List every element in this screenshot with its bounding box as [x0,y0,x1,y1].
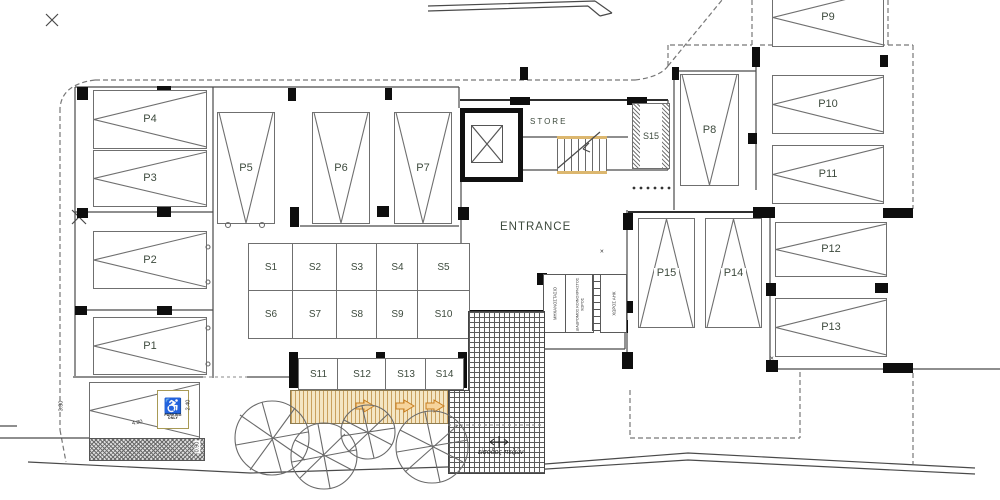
storage-s3: S3 [336,243,378,292]
store-label: STORE [530,117,567,126]
parking-label: P2 [140,255,159,266]
hatched-strip [89,438,205,461]
storage-s6: S6 [248,290,294,339]
parking-label: P11 [816,169,841,180]
machine-room: ΜΗΧΑΝΟΣΤΑΣΙΟ [543,274,567,333]
joint-symbol: ›‹ [770,355,773,362]
elevator-shaft [460,108,523,182]
parking-label: P9 [818,12,837,23]
parking-label: P8 [700,125,719,136]
parking-space-p15: P15 [638,218,695,328]
storage-label: S15 [643,131,659,141]
parking-label: P12 [818,244,844,255]
parking-label: P6 [331,163,350,174]
parking-space-p11: P11 [772,145,884,204]
pedestrian-entrance-label: είσοδος πεζών [478,449,524,456]
parking-space-p2: P2 [93,231,207,289]
dimension-2-40: 2.40 [185,400,191,411]
survey-x-marks [46,14,86,224]
storage-label: S14 [436,369,454,380]
storage-s13: S13 [385,358,427,390]
parking-space-p3: P3 [93,150,207,207]
storage-s7: S7 [292,290,338,339]
parking-space-p8: P8 [680,74,739,186]
storage-label: S5 [437,262,449,273]
storage-label: S12 [353,369,371,380]
storage-s9: S9 [376,290,419,339]
parking-space-p12: P12 [775,222,887,277]
storage-s12: S12 [337,358,387,390]
storage-s15: S15 [632,103,670,169]
parking-space-p10: P10 [772,75,884,134]
tree [291,423,357,489]
storage-label: S9 [391,309,403,320]
storage-s11: S11 [298,358,339,390]
parking-label: P5 [236,163,255,174]
storage-s1: S1 [248,243,294,292]
parking-space-p6: P6 [312,112,370,224]
parking-space-p5: P5 [217,112,275,224]
storage-s4: S4 [376,243,419,292]
storage-s5: S5 [417,243,470,292]
parking-space-p13: P13 [775,298,887,357]
hatched-wall [633,104,640,168]
storage-label: S3 [351,262,363,273]
storage-label: S11 [310,369,327,380]
parking-label: P3 [140,173,159,184]
utility-room-label: ΧΩΡΟΣ ΑΗΚ [612,277,617,331]
storage-label: S10 [435,309,453,320]
joint-symbol: ›‹ [600,248,603,255]
machine-room-label: ΜΗΧΑΝΟΣΤΑΣΙΟ [553,277,558,331]
utility-room: ΧΩΡΟΣ ΑΗΚ [600,274,627,333]
parking-space-p7: P7 [394,112,452,224]
wheelchair-icon: ♿ [164,399,183,414]
neighbor-outline [428,1,612,16]
parking-label: P13 [818,322,844,333]
storage-s8: S8 [336,290,378,339]
storage-label: S8 [351,309,363,320]
storage-label: S2 [309,262,321,273]
storage-label: S6 [265,309,277,320]
storage-label: S13 [397,369,415,380]
parking-space-p9: P9 [772,0,884,47]
wooden-deck [290,390,449,424]
storage-s10: S10 [417,290,470,339]
storage-label: S7 [309,309,321,320]
parking-space-p1: P1 [93,317,207,375]
hatched-wall [662,104,669,168]
storage-label: S4 [391,262,403,273]
storage-s2: S2 [292,243,338,292]
parking-label: P15 [654,268,680,279]
staircase [557,136,607,174]
entrance-label: ENTRANCE [500,221,571,233]
storage-label: S1 [265,262,277,273]
parking-label: P14 [721,268,747,279]
parking-label: P10 [815,99,841,110]
parking-label: P7 [413,163,432,174]
dimension-3-30: 3.30 [58,401,64,412]
parking-label: P4 [140,114,159,125]
dotted-screen [633,187,671,190]
dimension-0-90: 0.90 [194,441,200,454]
storage-s14: S14 [425,358,464,390]
floor-plan-canvas: P4 P3 P2 P1 P5 P6 P7 P8 P9 P10 P11 [0,0,1000,500]
elevator-x-icon [471,125,503,163]
parking-space-p4: P4 [93,90,207,149]
tiled-walkway [448,390,470,474]
common-corridor-label: ΔΙΑΔΡΟΜΟΣ ΚΟΙΝΟΧΡΗΣΤΟΣ ΧΩΡΟΣ [575,278,584,332]
parking-only-text-2: ONLY [168,417,178,421]
parking-space-p14: P14 [705,218,762,328]
parking-label: P1 [140,341,159,352]
common-corridor-room: ΔΙΑΔΡΟΜΟΣ ΚΟΙΝΟΧΡΗΣΤΟΣ ΧΩΡΟΣ [565,274,594,333]
disabled-parking-sign: ♿ PARKING ONLY [157,390,189,429]
